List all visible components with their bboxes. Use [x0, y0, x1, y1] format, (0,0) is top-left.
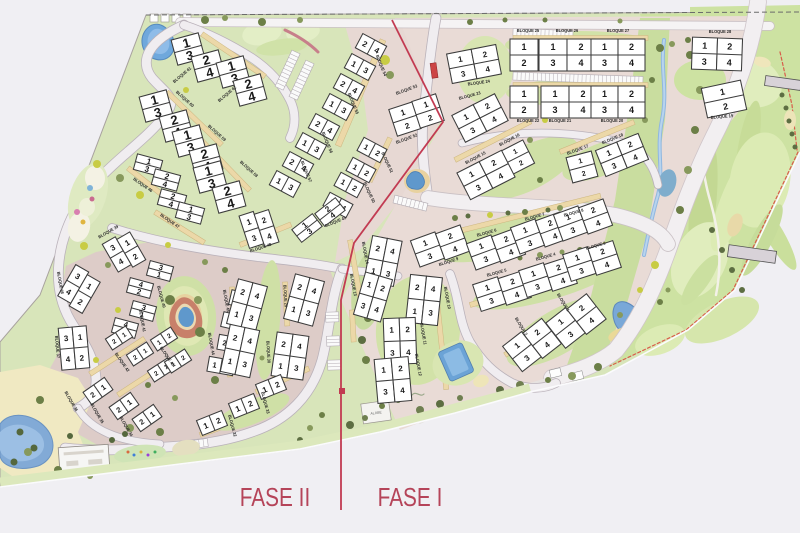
svg-text:BLOQUE 21: BLOQUE 21 — [549, 118, 572, 123]
svg-text:2: 2 — [580, 89, 585, 99]
svg-text:3: 3 — [702, 57, 707, 67]
svg-text:4: 4 — [629, 58, 634, 68]
svg-text:4: 4 — [580, 105, 585, 115]
svg-text:4: 4 — [578, 58, 583, 68]
svg-text:1: 1 — [550, 42, 555, 52]
svg-text:2: 2 — [629, 42, 634, 52]
svg-text:2: 2 — [578, 42, 583, 52]
svg-text:1: 1 — [521, 89, 526, 99]
svg-text:BLOQUE 28: BLOQUE 28 — [709, 29, 732, 34]
svg-text:3: 3 — [552, 105, 557, 115]
svg-text:2: 2 — [727, 42, 732, 52]
svg-text:2: 2 — [521, 58, 526, 68]
svg-text:BLOQUE 25: BLOQUE 25 — [517, 28, 540, 33]
svg-text:2: 2 — [629, 89, 634, 99]
svg-text:1: 1 — [702, 41, 707, 51]
svg-text:2: 2 — [521, 105, 526, 115]
svg-text:4: 4 — [727, 58, 732, 68]
svg-text:1: 1 — [602, 42, 607, 52]
svg-text:BLOQUE 20: BLOQUE 20 — [601, 118, 624, 123]
svg-text:BLOQUE 27: BLOQUE 27 — [607, 28, 630, 33]
svg-text:1: 1 — [552, 89, 557, 99]
svg-text:4: 4 — [629, 105, 634, 115]
svg-text:1: 1 — [521, 42, 526, 52]
svg-text:FASE I: FASE I — [378, 483, 443, 512]
svg-text:FASE II: FASE II — [240, 483, 310, 512]
svg-text:3: 3 — [602, 58, 607, 68]
svg-text:3: 3 — [602, 105, 607, 115]
svg-text:1: 1 — [602, 89, 607, 99]
svg-text:BLOQUE 22: BLOQUE 22 — [517, 118, 540, 123]
svg-text:3: 3 — [550, 58, 555, 68]
svg-text:BLOQUE 26: BLOQUE 26 — [556, 28, 579, 33]
